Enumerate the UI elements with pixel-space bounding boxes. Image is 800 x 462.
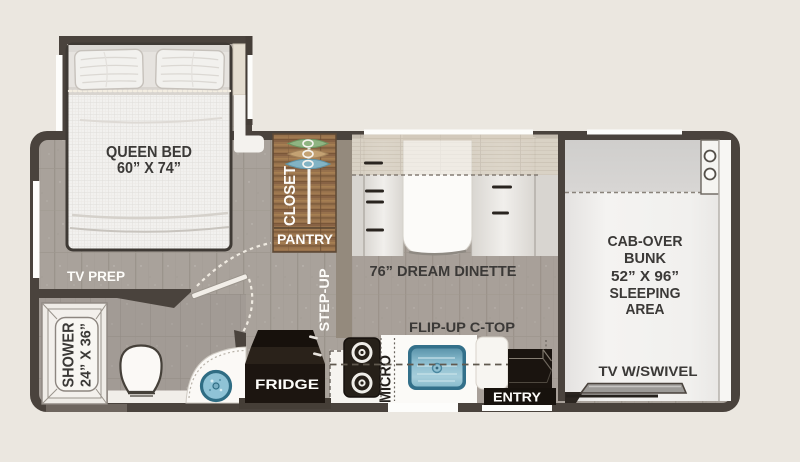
svg-text:52” X 96”: 52” X 96” [611, 269, 679, 285]
svg-text:BUNK: BUNK [624, 251, 666, 267]
svg-text:STEP-UP: STEP-UP [317, 269, 332, 332]
svg-text:CLOSET: CLOSET [282, 166, 299, 226]
svg-text:PANTRY: PANTRY [277, 231, 334, 247]
svg-text:76” DREAM DINETTE: 76” DREAM DINETTE [370, 263, 517, 280]
svg-text:SHOWER: SHOWER [61, 323, 78, 388]
svg-text:TV W/SWIVEL: TV W/SWIVEL [599, 364, 698, 379]
svg-text:ENTRY: ENTRY [493, 390, 541, 405]
svg-text:TV PREP: TV PREP [67, 269, 125, 284]
svg-text:CAB-OVER: CAB-OVER [608, 234, 683, 250]
svg-text:MICRO: MICRO [378, 355, 395, 403]
svg-text:FRIDGE: FRIDGE [255, 376, 319, 392]
svg-text:QUEEN BED: QUEEN BED [106, 144, 192, 161]
svg-text:AREA: AREA [626, 302, 665, 318]
svg-text:24” X 36”: 24” X 36” [79, 323, 95, 387]
svg-text:FLIP-UP C-TOP: FLIP-UP C-TOP [409, 319, 515, 335]
svg-text:60” X 74”: 60” X 74” [117, 160, 181, 177]
svg-text:SLEEPING: SLEEPING [610, 286, 681, 302]
